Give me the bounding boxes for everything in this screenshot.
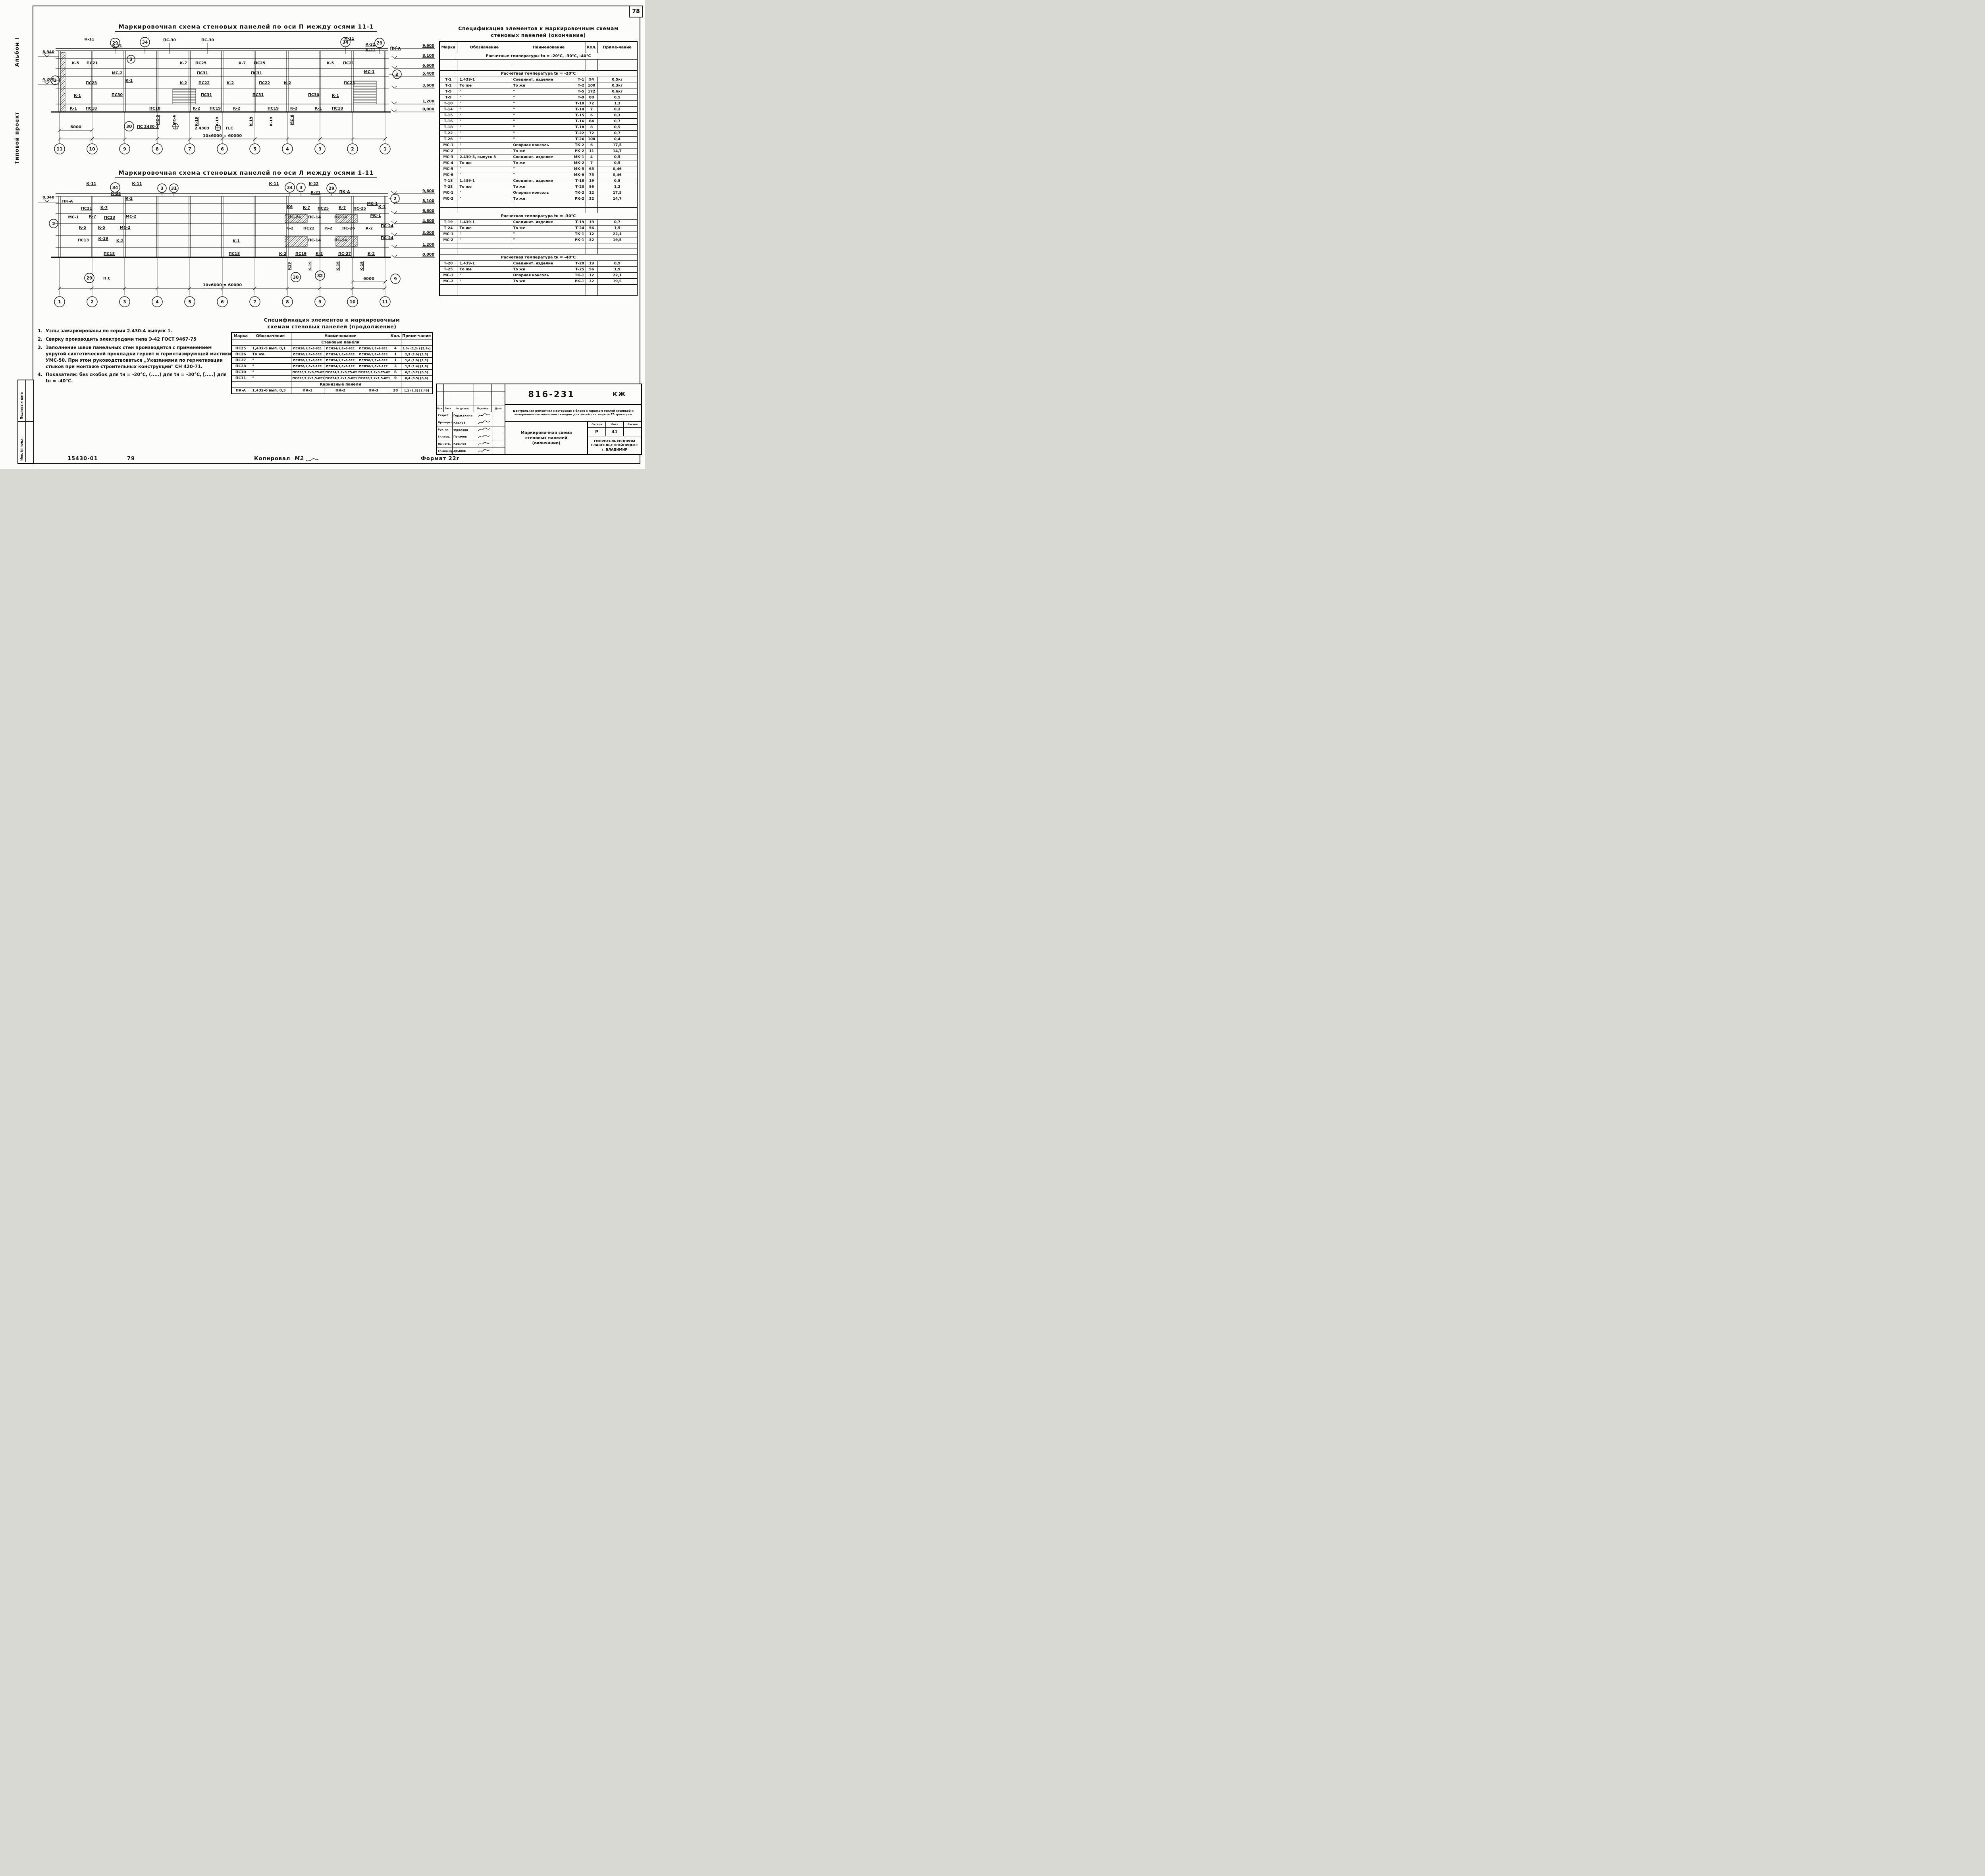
cell-name: "Т-26 [512, 137, 586, 143]
spec-row: Т-14 " "Т-14 7 0,2 [439, 107, 637, 113]
cell-designation: " [250, 369, 291, 375]
detail-callout: 32 [317, 274, 323, 278]
detail-callout: 30 [126, 124, 132, 129]
spec-row: Т-9 " "Т-9 80 0,5 [439, 95, 637, 101]
svg-text:К-5: К-5 [79, 226, 86, 230]
cell-note: 0,7 [597, 131, 637, 137]
note-number: 2. [38, 336, 46, 343]
svg-text:К-5: К-5 [327, 61, 334, 66]
cell-qty: 12 [586, 190, 597, 196]
svg-text:ПС25: ПС25 [195, 61, 206, 66]
name-mark: Т-10 [575, 102, 584, 106]
strip-label-inventory-number: Инв. № подл. [20, 438, 23, 461]
name-text: " [513, 90, 515, 94]
document-code: КЖ [597, 391, 641, 398]
name-mark: Т-16 [575, 120, 584, 123]
cell-name: ПСП30/1,2х6-322 [357, 357, 390, 363]
svg-text:К-19: К-19 [360, 261, 364, 271]
svg-text:ПС21: ПС21 [87, 61, 98, 66]
name-text: То же [513, 84, 526, 88]
cell-designation: То же [457, 226, 512, 231]
name-mark: Т-23 [575, 185, 584, 189]
svg-text:8: 8 [286, 299, 289, 305]
cell-designation: То же [250, 351, 291, 357]
header-row: Марка Обозначение Наименование Кол. Прим… [439, 41, 637, 53]
org-line: ГЛАВСЕЛЬСТРОЙПРОЕКТ [591, 443, 638, 447]
staff-date [493, 419, 505, 426]
cell-qty: 9 [390, 375, 401, 381]
spec-row: ПС26 То же ПСЛ20/1,8х6-322 ПСЛ24/1,8х6-3… [231, 351, 432, 357]
spec-row: ПС28 " ПСЛ20/1,8х3-122 ПСЛ24/1,8х3-122 П… [231, 363, 432, 369]
cell-designation: " [457, 231, 512, 237]
svg-text:ПС18: ПС18 [104, 252, 115, 256]
cell-name: ПСЛ24/1,8х6-322 [324, 351, 357, 357]
svg-text:К-7: К-7 [239, 61, 246, 66]
svg-text:К-19: К-19 [270, 117, 274, 126]
cell-qty: 8 [586, 125, 597, 131]
svg-text:ПС31: ПС31 [251, 71, 262, 75]
cell-designation: " [457, 279, 512, 285]
note-item: 4. Показатели: без скобок для tн = -20°С… [38, 372, 233, 384]
cell-note: 0,5 [597, 178, 637, 184]
name-mark: Т-9 [578, 96, 584, 100]
hdr-izm: Изм. [437, 405, 444, 412]
staff-role: Разраб. [437, 412, 453, 419]
staff-row: Гл.спец. Пугачев [437, 433, 505, 440]
cell-qty: 12 [586, 273, 597, 279]
cell-designation: " [457, 107, 512, 113]
name-mark: МК-1 [574, 155, 584, 159]
svg-text:К-1: К-1 [125, 79, 133, 83]
cell-name: ПСЛ24/1,2х0,75-022 [324, 369, 357, 375]
org-line: г. ВЛАДИМИР [602, 447, 628, 452]
note-item: 1. Узлы замаркированы по серии 2.430-4 в… [38, 328, 233, 334]
cell-name: ПСЛ20/1,8х6-322 [291, 351, 324, 357]
spec-bottom-title-1: Спецификация элементов к маркировочным [231, 317, 433, 324]
spec-row: Т-16 " "Т-16 84 0,7 [439, 119, 637, 125]
staff-name: Фролова [453, 426, 475, 433]
svg-text:К-22: К-22 [309, 182, 319, 186]
cell-name: То жеРК-2 [512, 196, 586, 202]
name-text: То же [513, 226, 526, 230]
svg-text:П.С: П.С [226, 126, 233, 131]
cell-name: То жеМК-2 [512, 160, 586, 166]
cell-name: ПК-3 [357, 388, 390, 394]
cell-designation: То же [457, 184, 512, 190]
svg-text:ПС-14: ПС-14 [334, 238, 347, 243]
note-item: 2. Сварку производить электродами типа Э… [38, 336, 233, 343]
section-title: Расчетные температуры tн = -20°С, -30°С,… [439, 53, 637, 60]
callout: 34 [112, 185, 118, 190]
spec-row: Т-1 1.439-1 Соединит. изделиеТ-1 94 0,5к… [439, 77, 637, 83]
name-mark: МК-5 [574, 167, 584, 171]
svg-text:К-7: К-7 [303, 206, 310, 210]
detail-callout: 9 [394, 277, 397, 281]
cell-mark: Т-19 [439, 220, 457, 226]
svg-text:МС-1: МС-1 [364, 70, 375, 74]
cell-note: 17,5 [597, 190, 637, 196]
staff-date [493, 426, 505, 433]
cell-name: "МК-5 [512, 166, 586, 172]
col-header: Приме-чание [401, 333, 432, 339]
note-text: Заполнение швов панельных стен производи… [46, 345, 233, 370]
section-row: Расчетная температура tн = -40°С [439, 255, 637, 261]
name-text: Соединит. изделие [513, 220, 553, 224]
name-text: Опорная консоль [513, 274, 549, 278]
cell-designation: " [457, 125, 512, 131]
name-text: То же [513, 149, 526, 153]
svg-text:ПС30: ПС30 [308, 93, 320, 97]
cell-name: То жеТ-25 [512, 267, 586, 273]
section-row: Стеновые панели [231, 339, 432, 345]
svg-text:МС-2: МС-2 [112, 71, 123, 75]
cell-name: Соединит. изделиеТ-19 [512, 220, 586, 226]
cell-name: ПСЛ24/1,2х1,5-021 [324, 375, 357, 381]
svg-text:3: 3 [318, 147, 322, 152]
cell-note: 1,9 [597, 267, 637, 273]
svg-text:К-11: К-11 [269, 182, 279, 186]
cell-mark: Т-10 [439, 101, 457, 107]
cell-mark: ПС30 [231, 369, 250, 375]
name-mark: МК-2 [574, 161, 584, 165]
svg-text:К-1: К-1 [378, 205, 385, 209]
signature [475, 440, 493, 447]
cell-qty: 12 [586, 231, 597, 237]
cell-mark: Т-2 [439, 83, 457, 89]
cell-qty: 65 [586, 166, 597, 172]
svg-text:1: 1 [384, 147, 387, 152]
cell-name: То жеРК-1 [512, 279, 586, 285]
cell-qty: 56 [586, 184, 597, 190]
wall-structure [38, 43, 435, 143]
svg-text:ПС23: ПС23 [344, 81, 355, 85]
staff-date [493, 440, 505, 447]
cell-designation: " [250, 357, 291, 363]
litera-table: Литера Лист Листов Р 41 [588, 422, 641, 436]
svg-text:ПС-14: ПС-14 [308, 238, 321, 243]
cell-name: Опорная консольТК-1 [512, 273, 586, 279]
callout: 2 [52, 222, 55, 226]
cell-designation: " [457, 196, 512, 202]
svg-text:К-2: К-2 [366, 226, 373, 231]
spec-bottom-title-2: схемам стеновых панелей (продолжение) [231, 324, 433, 330]
name-text: " [513, 102, 515, 106]
footer-year: 79 [127, 456, 135, 462]
svg-text:2: 2 [91, 299, 94, 305]
cell-mark: МС-2 [439, 196, 457, 202]
cell-mark: МС-1 [439, 273, 457, 279]
name-mark: ТК-2 [575, 191, 584, 195]
cell-mark: МС-6 [439, 172, 457, 178]
cell-mark: МС-3 [439, 154, 457, 160]
svg-text:7: 7 [188, 147, 191, 152]
spec-row: ПС30 " ПСЛ20/1,2х0,75-022 ПСЛ24/1,2х0,75… [231, 369, 432, 375]
svg-text:К-2: К-2 [368, 252, 375, 256]
name-text: " [513, 120, 515, 123]
elevation-mark: 0,000 [422, 107, 434, 112]
drawing-mid-title: Маркировочная схема стеновых панелей по … [115, 170, 377, 178]
cell-note: 1,5 (1,4) [1,8] [401, 363, 432, 369]
cell-name: Опорная консольТК-2 [512, 190, 586, 196]
cell-name: "РК-1 [512, 237, 586, 243]
cell-qty: 100 [586, 83, 597, 89]
name-mark: ТК-2 [575, 143, 584, 147]
name-text: Соединит. изделие [513, 262, 553, 266]
cell-designation: 2.430-3, выпуск 3 [457, 154, 512, 160]
cell-note: 19,5 [597, 237, 637, 243]
signature [475, 426, 493, 433]
cell-mark: ПС25 [231, 345, 250, 351]
name-text: " [513, 167, 515, 171]
svg-text:ПС18: ПС18 [86, 106, 97, 111]
cell-designation: " [457, 95, 512, 101]
svg-text:К-2: К-2 [227, 81, 234, 85]
cell-qty: 3 [390, 363, 401, 369]
name-text: " [513, 108, 515, 112]
cell-designation: " [457, 131, 512, 137]
svg-text:П.С: П.С [103, 276, 111, 281]
spec-row: Т-20 1.439-1 Соединит. изделиеТ-20 19 0,… [439, 261, 637, 267]
cell-note: 0,3кг [597, 83, 637, 89]
svg-text:К-11: К-11 [87, 182, 96, 186]
header-row: Марка Обозначение Наименование Кол. Прим… [231, 333, 432, 339]
staff-date [493, 412, 505, 419]
name-mark: Т-22 [575, 131, 584, 135]
svg-text:3: 3 [123, 299, 126, 305]
cell-mark: Т-22 [439, 131, 457, 137]
spec-row: МС-1 " Опорная консольТК-2 6 17,5 [439, 143, 637, 148]
cell-designation: " [457, 148, 512, 154]
spec-row: Т-25 То же То жеТ-25 56 1,9 [439, 267, 637, 273]
cell-name: Соединит. изделиеТ-20 [512, 261, 586, 267]
spec-right-title-1: Спецификация элементов к маркировочным с… [439, 25, 638, 32]
cell-note: 0,9 [597, 261, 637, 267]
strip-label-signature-date: Подпись и дата [20, 392, 23, 419]
cell-designation: " [457, 273, 512, 279]
spec-row: МС-3 2.430-3, выпуск 3 Соединит. изделие… [439, 154, 637, 160]
svg-text:К-7: К-7 [100, 206, 108, 210]
elevation-mark: 8,340 [42, 195, 54, 200]
svg-text:ПС30: ПС30 [112, 93, 123, 97]
list-value: 41 [606, 428, 624, 436]
svg-text:6: 6 [221, 147, 224, 152]
svg-text:ПС23: ПС23 [86, 81, 97, 85]
spec-row: МС-1 " Опорная консольТК-1 12 22,1 [439, 273, 637, 279]
cell-name: "Т-16 [512, 119, 586, 125]
drawing-top-title: Маркировочная схема стеновых панелей по … [115, 24, 377, 32]
cell-name: ПСЛ20/1,2х1,5-021 [291, 375, 324, 381]
cell-qty: 28 [390, 388, 401, 394]
cell-name: То жеТ-2 [512, 83, 586, 89]
cell-mark: Т-1 [439, 77, 457, 83]
cell-qty: 72 [586, 131, 597, 137]
cell-mark: МС-1 [439, 231, 457, 237]
name-text: То же [513, 161, 526, 165]
cell-mark: ПС28 [231, 363, 250, 369]
dimensions: 6000 10х6000 = 60000 [203, 277, 374, 287]
svg-text:2.4303: 2.4303 [195, 126, 209, 131]
name-text: То же [513, 268, 526, 272]
cell-designation: " [457, 237, 512, 243]
litera-header: Литера [588, 422, 606, 427]
svg-text:К-2: К-2 [233, 106, 240, 111]
title-block-main: 816-231 КЖ Центральная ремонтная мастерс… [505, 384, 641, 454]
name-mark: Т-2 [578, 84, 584, 88]
cell-qty: 84 [586, 119, 597, 125]
svg-text:7: 7 [253, 299, 256, 305]
sheet-title-line: Маркировочная схема [520, 430, 572, 436]
cell-note: 0,4 (0,5) [0,6] [401, 375, 432, 381]
cell-qty: 32 [586, 279, 597, 285]
cell-name: ПСЛ30/1,5х6-621 [357, 345, 390, 351]
svg-text:ПС18: ПС18 [229, 252, 240, 256]
elevation-mark: 6,600 [422, 64, 434, 68]
cell-name: Соединит. изделиеТ-1 [512, 77, 586, 83]
staff-row: Рук. гр. Фролова [437, 426, 505, 434]
svg-text:ПС-24: ПС-24 [381, 236, 393, 240]
cell-name: "Т-22 [512, 131, 586, 137]
cell-designation: 1.439-1 [457, 178, 512, 184]
cell-qty: 11 [586, 148, 597, 154]
note-text: Показатели: без скобок для tн = -20°С, (… [46, 372, 233, 384]
drawing-sheet: Альбом I Типовой проект 78 Подпись и дат… [0, 0, 645, 469]
name-mark: Т-15 [575, 114, 584, 118]
cell-mark: ПК-А [231, 388, 250, 394]
svg-text:К-2: К-2 [125, 197, 133, 201]
cell-mark: Т-15 [439, 113, 457, 119]
cell-qty: 19 [586, 178, 597, 184]
cell-designation: 1.439-1 [457, 220, 512, 226]
spec-row: Т-10 " "Т-10 72 1,3 [439, 101, 637, 107]
svg-text:К-1: К-1 [315, 106, 322, 111]
cell-qty: 94 [586, 77, 597, 83]
cell-note: 1,6 (1,9) [2,3] [401, 357, 432, 363]
inventory-strip-cell: Инв. № подл. [18, 422, 33, 462]
svg-text:К-11: К-11 [345, 37, 355, 41]
cell-note: 1,2 (1,3) [1,45] [401, 388, 432, 394]
name-text: Соединит. изделие [513, 78, 553, 82]
cell-note: 19,5 [597, 279, 637, 285]
margin-album-label: Альбом I [14, 37, 20, 67]
panel-labels: К-11 К-22 К-2 ПК-А К-11 К-11 К-22 К-21 П… [62, 182, 393, 281]
spec-row: МС-1 " Опорная консольТК-2 12 17,5 [439, 190, 637, 196]
svg-text:К-5: К-5 [72, 61, 79, 66]
spec-row: ПК-А 1.432-6 вып. 0,3 ПК-1 ПК-2 ПК-3 28 … [231, 388, 432, 394]
cell-note: 22,1 [597, 273, 637, 279]
staff-row: Гл.инж.пр. Трынов [437, 447, 505, 454]
footer-format: Формат 22г [421, 456, 459, 462]
marking-scheme-axis-p: 9,600 8,100 6,600 5,400 3,600 1,200 0,00… [36, 37, 437, 156]
cell-note: 1,5 [597, 226, 637, 231]
name-text: " [513, 238, 515, 242]
cell-mark: МС-1 [439, 143, 457, 148]
cell-qty: 32 [586, 237, 597, 243]
svg-text:К-2: К-2 [284, 81, 291, 85]
svg-text:К-2: К-2 [316, 252, 323, 256]
cell-name: "МК-6 [512, 172, 586, 178]
svg-text:ПС31: ПС31 [197, 71, 208, 75]
svg-text:ПС19: ПС19 [210, 106, 221, 111]
spec-row: Т-22 " "Т-22 72 0,7 [439, 131, 637, 137]
callout: 3 [129, 57, 132, 62]
staff-row: Проверил Кислов [437, 419, 505, 426]
svg-text:ПС-30: ПС-30 [163, 38, 176, 42]
svg-text:К-19: К-19 [308, 261, 312, 271]
svg-text:К19: К19 [288, 262, 292, 270]
elevation-mark: 5,400 [422, 71, 434, 76]
cell-mark: МС-2 [439, 148, 457, 154]
cell-qty: 7 [586, 107, 597, 113]
svg-text:ПС 2430-3: ПС 2430-3 [137, 125, 159, 129]
cell-note: 1,3 [597, 101, 637, 107]
name-mark: РК-2 [575, 197, 584, 201]
cell-mark: ПС26 [231, 351, 250, 357]
svg-text:ПС31: ПС31 [252, 93, 264, 97]
name-text: Опорная консоль [513, 191, 549, 195]
cell-name: "ТК-1 [512, 231, 586, 237]
svg-text:МС-1: МС-1 [367, 202, 378, 206]
cell-note: 17,5 [597, 143, 637, 148]
cell-designation: " [250, 375, 291, 381]
cell-note: 0,5 [597, 154, 637, 160]
spec-table-final: Спецификация элементов к маркировочным с… [439, 25, 638, 296]
cell-qty: 75 [586, 172, 597, 178]
cell-note: 0,2 [597, 107, 637, 113]
svg-text:К-5: К-5 [98, 226, 105, 230]
svg-text:11: 11 [382, 299, 388, 305]
note-item: 3. Заполнение швов панельных стен произв… [38, 345, 233, 370]
spec-row: Т-5 " "Т-5 172 0,6кг [439, 89, 637, 95]
name-mark: Т-18 [575, 125, 584, 129]
signature [475, 433, 493, 440]
svg-text:ПК-А: ПК-А [390, 46, 401, 51]
svg-text:МС-6: МС-6 [173, 115, 177, 125]
cell-name: То жеРК-2 [512, 148, 586, 154]
svg-text:МС-5: МС-5 [156, 115, 160, 125]
cell-name: ПСЛ20/1,5х6-621 [291, 345, 324, 351]
copied-signature-squiggle [305, 457, 319, 463]
col-header: Обозначение [457, 41, 512, 53]
svg-text:ПС-24: ПС-24 [288, 215, 301, 220]
staff-role: Нач.отд. [437, 440, 453, 447]
spec-bottom-table: Марка Обозначение Наименование Кол. Прим… [231, 332, 433, 394]
cell-note: 0,5 [597, 125, 637, 131]
callout: 34 [287, 185, 293, 190]
cell-name: ПСЛ30/1,2х0,75-022 [357, 369, 390, 375]
cell-note: 0,46 [597, 166, 637, 172]
svg-text:МС-1: МС-1 [68, 215, 79, 220]
section-title: Карнизные панели [291, 381, 390, 388]
name-text: То же [513, 185, 526, 189]
svg-text:ПС-26: ПС-26 [342, 226, 355, 231]
cell-mark: ПС27 [231, 357, 250, 363]
staff-role: Гл.спец. [437, 433, 453, 440]
svg-text:5: 5 [188, 299, 191, 305]
cell-designation: " [457, 101, 512, 107]
signature [475, 447, 493, 454]
note-number: 4. [38, 372, 46, 384]
spec-row: МС-1 " "ТК-1 12 22,1 [439, 231, 637, 237]
name-mark: Т-19 [575, 220, 584, 224]
svg-text:10: 10 [89, 147, 95, 152]
wall-structure [38, 191, 435, 295]
svg-text:ПС-30: ПС-30 [201, 38, 214, 42]
svg-text:К-11: К-11 [85, 37, 94, 42]
cell-name: Опорная консольТК-2 [512, 143, 586, 148]
note-number: 1. [38, 328, 46, 334]
col-header: Марка [439, 41, 457, 53]
name-mark: Т-20 [575, 262, 584, 266]
